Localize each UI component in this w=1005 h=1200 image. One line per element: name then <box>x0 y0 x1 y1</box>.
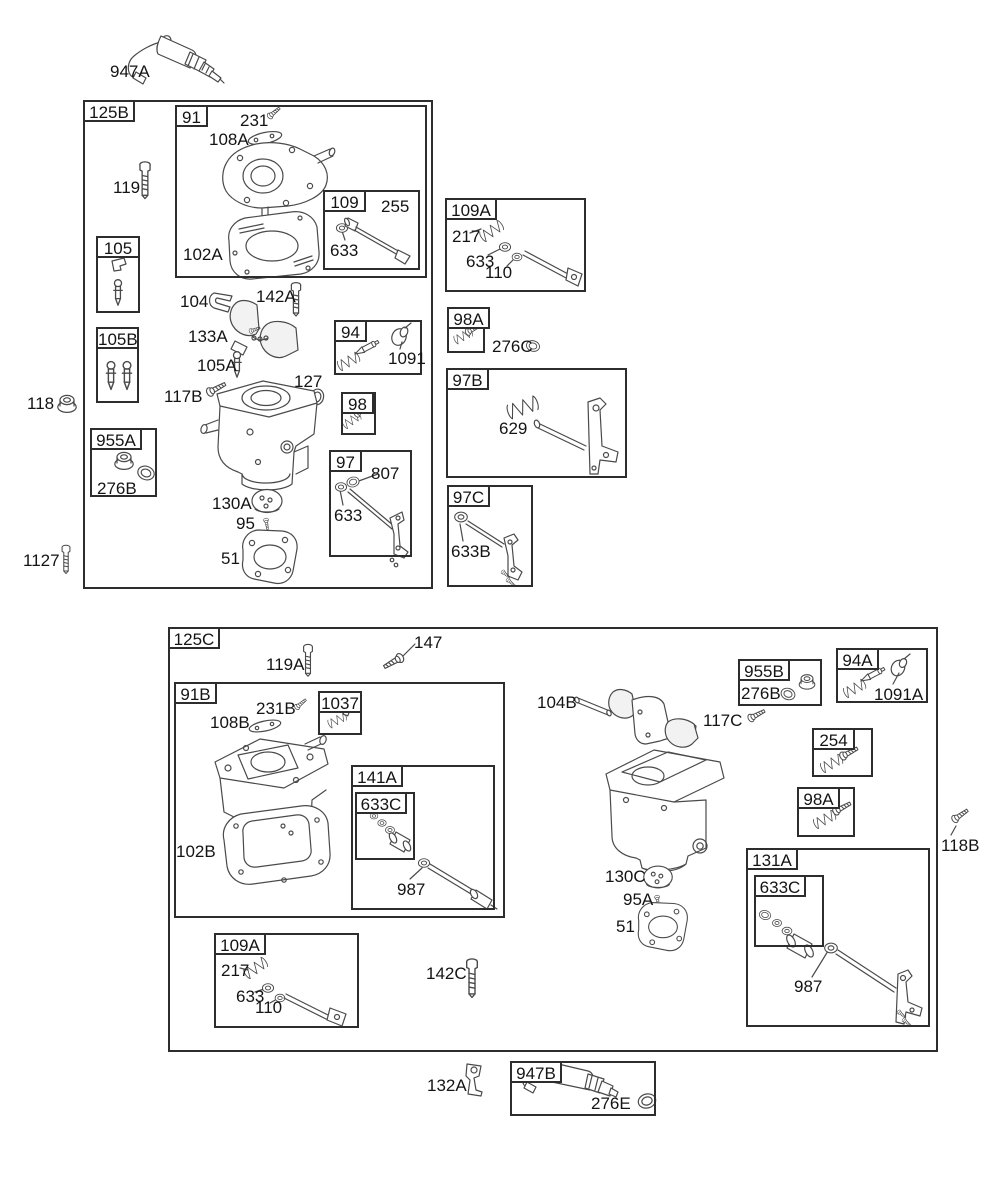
part-label-104: 104 <box>180 292 208 312</box>
group-box-1037: 1037 <box>318 691 362 735</box>
part-label-108B: 108B <box>210 713 250 733</box>
part-label-110: 110 <box>255 998 282 1018</box>
group-box-label-125B: 125B <box>83 100 135 122</box>
part-label-119A: 119A <box>266 655 304 675</box>
group-box-label-109A-2: 109A <box>214 933 266 955</box>
group-box-98: 98 <box>341 392 376 435</box>
part-label-987: 987 <box>397 880 425 900</box>
group-box-947B: 947B <box>510 1061 656 1116</box>
part-label-987: 987 <box>794 977 822 997</box>
part-label-633: 633 <box>330 241 358 261</box>
group-box-label-955A: 955A <box>90 428 142 450</box>
nut-118-icon <box>58 395 76 412</box>
group-box-label-131A: 131A <box>746 848 798 870</box>
part-label-276B: 276B <box>741 684 781 704</box>
group-box-97C: 97C <box>447 485 533 587</box>
part-label-51: 51 <box>616 917 635 937</box>
group-box-label-141A: 141A <box>351 765 403 787</box>
group-box-label-109: 109 <box>323 190 366 212</box>
part-label-947A: 947A <box>110 62 150 82</box>
part-label-51: 51 <box>221 549 240 569</box>
part-label-633B: 633B <box>451 542 491 562</box>
group-box-254: 254 <box>812 728 873 777</box>
part-label-117B: 117B <box>164 387 202 407</box>
group-box-633C-131A: 633C <box>754 875 824 947</box>
parts-diagram-canvas: 125B91109105105B9498955A97109A98A97B97C1… <box>0 0 1005 1200</box>
part-label-102B: 102B <box>176 842 216 862</box>
part-label-276B: 276B <box>97 479 137 499</box>
part-label-118: 118 <box>27 394 54 414</box>
group-box-label-98A-2: 98A <box>797 787 840 809</box>
part-label-276C: 276C <box>492 337 533 357</box>
group-box-label-97C: 97C <box>447 485 490 507</box>
group-box-98A-1: 98A <box>447 307 485 353</box>
part-label-142A: 142A <box>256 287 296 307</box>
group-box-label-94A: 94A <box>836 648 879 670</box>
group-box-label-98: 98 <box>341 392 374 414</box>
part-label-117C: 117C <box>703 711 742 731</box>
part-label-1091: 1091 <box>388 349 426 369</box>
part-label-127: 127 <box>294 372 322 392</box>
group-box-label-1037: 1037 <box>318 691 362 713</box>
part-label-217: 217 <box>452 227 480 247</box>
part-label-104B: 104B <box>537 693 577 713</box>
part-label-807: 807 <box>371 464 399 484</box>
screw-118B-icon <box>950 807 969 835</box>
part-label-130A: 130A <box>212 494 252 514</box>
group-box-label-109A-1: 109A <box>445 198 497 220</box>
part-label-119: 119 <box>113 178 140 198</box>
part-label-231B: 231B <box>256 699 296 719</box>
part-label-633: 633 <box>334 506 362 526</box>
part-label-95A: 95A <box>623 890 653 910</box>
part-label-276E: 276E <box>591 1094 631 1114</box>
group-box-633C-141A: 633C <box>355 792 415 860</box>
part-label-130C: 130C <box>605 867 646 887</box>
group-box-105B: 105B <box>96 327 139 403</box>
part-label-132A: 132A <box>427 1076 467 1096</box>
group-box-label-955B: 955B <box>738 659 790 681</box>
group-box-98A-2: 98A <box>797 787 855 837</box>
part-label-102A: 102A <box>183 245 223 265</box>
part-label-118B: 118B <box>941 836 979 856</box>
group-box-label-105B: 105B <box>96 327 139 349</box>
screw-1127-icon <box>62 545 70 573</box>
part-label-1127: 1127 <box>23 551 60 571</box>
group-box-label-91: 91 <box>175 105 208 127</box>
part-label-110: 110 <box>485 263 512 283</box>
part-label-231: 231 <box>240 111 268 131</box>
group-box-label-125C: 125C <box>168 627 220 649</box>
part-label-105A: 105A <box>197 356 237 376</box>
part-label-95: 95 <box>236 514 255 534</box>
group-box-label-947B: 947B <box>510 1061 562 1083</box>
group-box-label-97B: 97B <box>446 368 489 390</box>
part-label-629: 629 <box>499 419 527 439</box>
part-label-1091A: 1091A <box>874 685 923 705</box>
part-label-147: 147 <box>414 633 442 653</box>
group-box-105: 105 <box>96 236 140 313</box>
group-box-97B: 97B <box>446 368 627 478</box>
group-box-label-91B: 91B <box>174 682 217 704</box>
part-label-133A: 133A <box>188 327 228 347</box>
part-label-108A: 108A <box>209 130 249 150</box>
group-box-label-98A-1: 98A <box>447 307 490 329</box>
part-label-255: 255 <box>381 197 409 217</box>
group-box-label-94: 94 <box>334 320 367 342</box>
group-box-label-97: 97 <box>329 450 362 472</box>
group-box-label-105: 105 <box>96 236 140 258</box>
part-label-142C: 142C <box>426 964 467 984</box>
bracket-132A-icon <box>466 1064 482 1096</box>
group-box-label-254: 254 <box>812 728 855 750</box>
group-box-label-633C-131A: 633C <box>754 875 806 897</box>
group-box-label-633C-141A: 633C <box>355 792 407 814</box>
part-label-217: 217 <box>221 961 249 981</box>
